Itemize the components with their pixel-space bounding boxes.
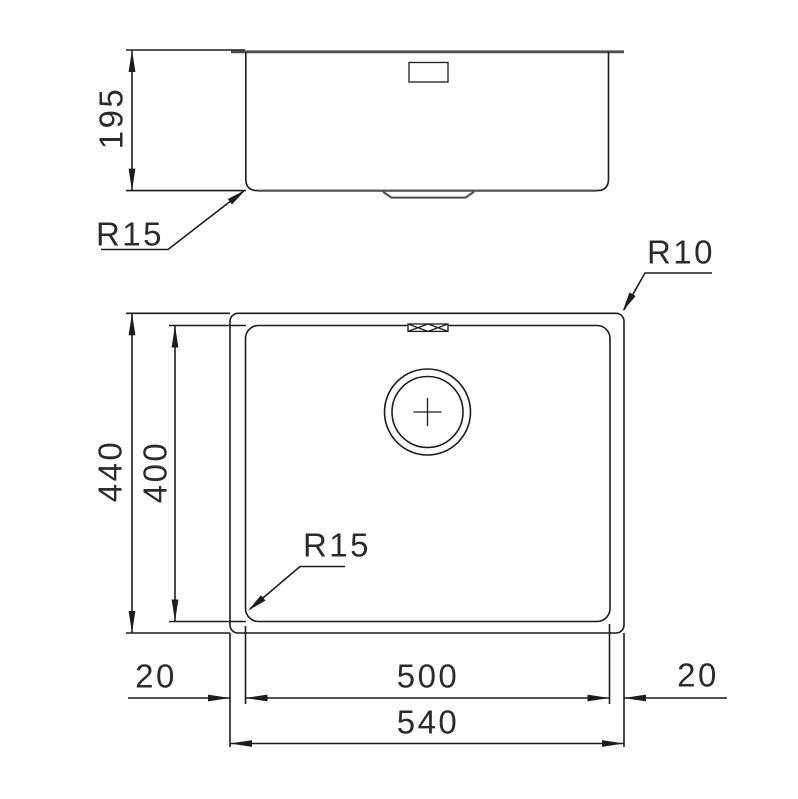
arrow-down-icon: [172, 600, 179, 622]
side-overflow-hole: [409, 63, 448, 83]
arrow-up-icon: [129, 50, 136, 72]
arrow-left-icon: [246, 695, 268, 702]
side-radius-label: R15: [96, 218, 164, 251]
arrow-leader-icon: [228, 190, 246, 205]
plan-r10-leader: [624, 273, 712, 310]
plan-outer-rect: [230, 313, 624, 633]
arrow-right-icon: [602, 740, 624, 747]
arrow-down-icon: [129, 169, 136, 191]
plan-overflow-slot: [408, 324, 448, 331]
plan-inner-rect: [246, 326, 611, 622]
dim-rim-left-label: 20: [135, 660, 177, 693]
dim-inner-width-label: 500: [397, 660, 460, 693]
arrow-left-icon: [230, 740, 252, 747]
arrow-up-icon: [129, 313, 136, 335]
arrow-leader-icon: [623, 292, 636, 311]
arrow-left-icon: [624, 695, 646, 702]
dim-inner-height-label: 400: [139, 441, 172, 504]
plan-outer-radius-label: R10: [647, 236, 715, 269]
plan-inner-radius-label: R15: [303, 529, 371, 562]
arrow-up-icon: [172, 326, 179, 348]
dim-outer-width-label: 540: [397, 706, 460, 739]
technical-drawing-canvas: 195 R15 R10 440 400 R15 20 500 20 540: [0, 0, 798, 799]
arrow-right-icon: [588, 695, 610, 702]
dim-depth-label: 195: [95, 87, 128, 150]
dim-rim-right-label: 20: [677, 659, 719, 692]
plan-r15-leader: [250, 567, 345, 610]
arrow-right-icon: [208, 695, 230, 702]
arrow-down-icon: [129, 611, 136, 633]
arrow-leader-icon: [248, 595, 266, 611]
side-view: [101, 50, 624, 250]
dim-outer-height-label: 440: [94, 440, 127, 503]
side-drain-boss: [383, 192, 474, 198]
